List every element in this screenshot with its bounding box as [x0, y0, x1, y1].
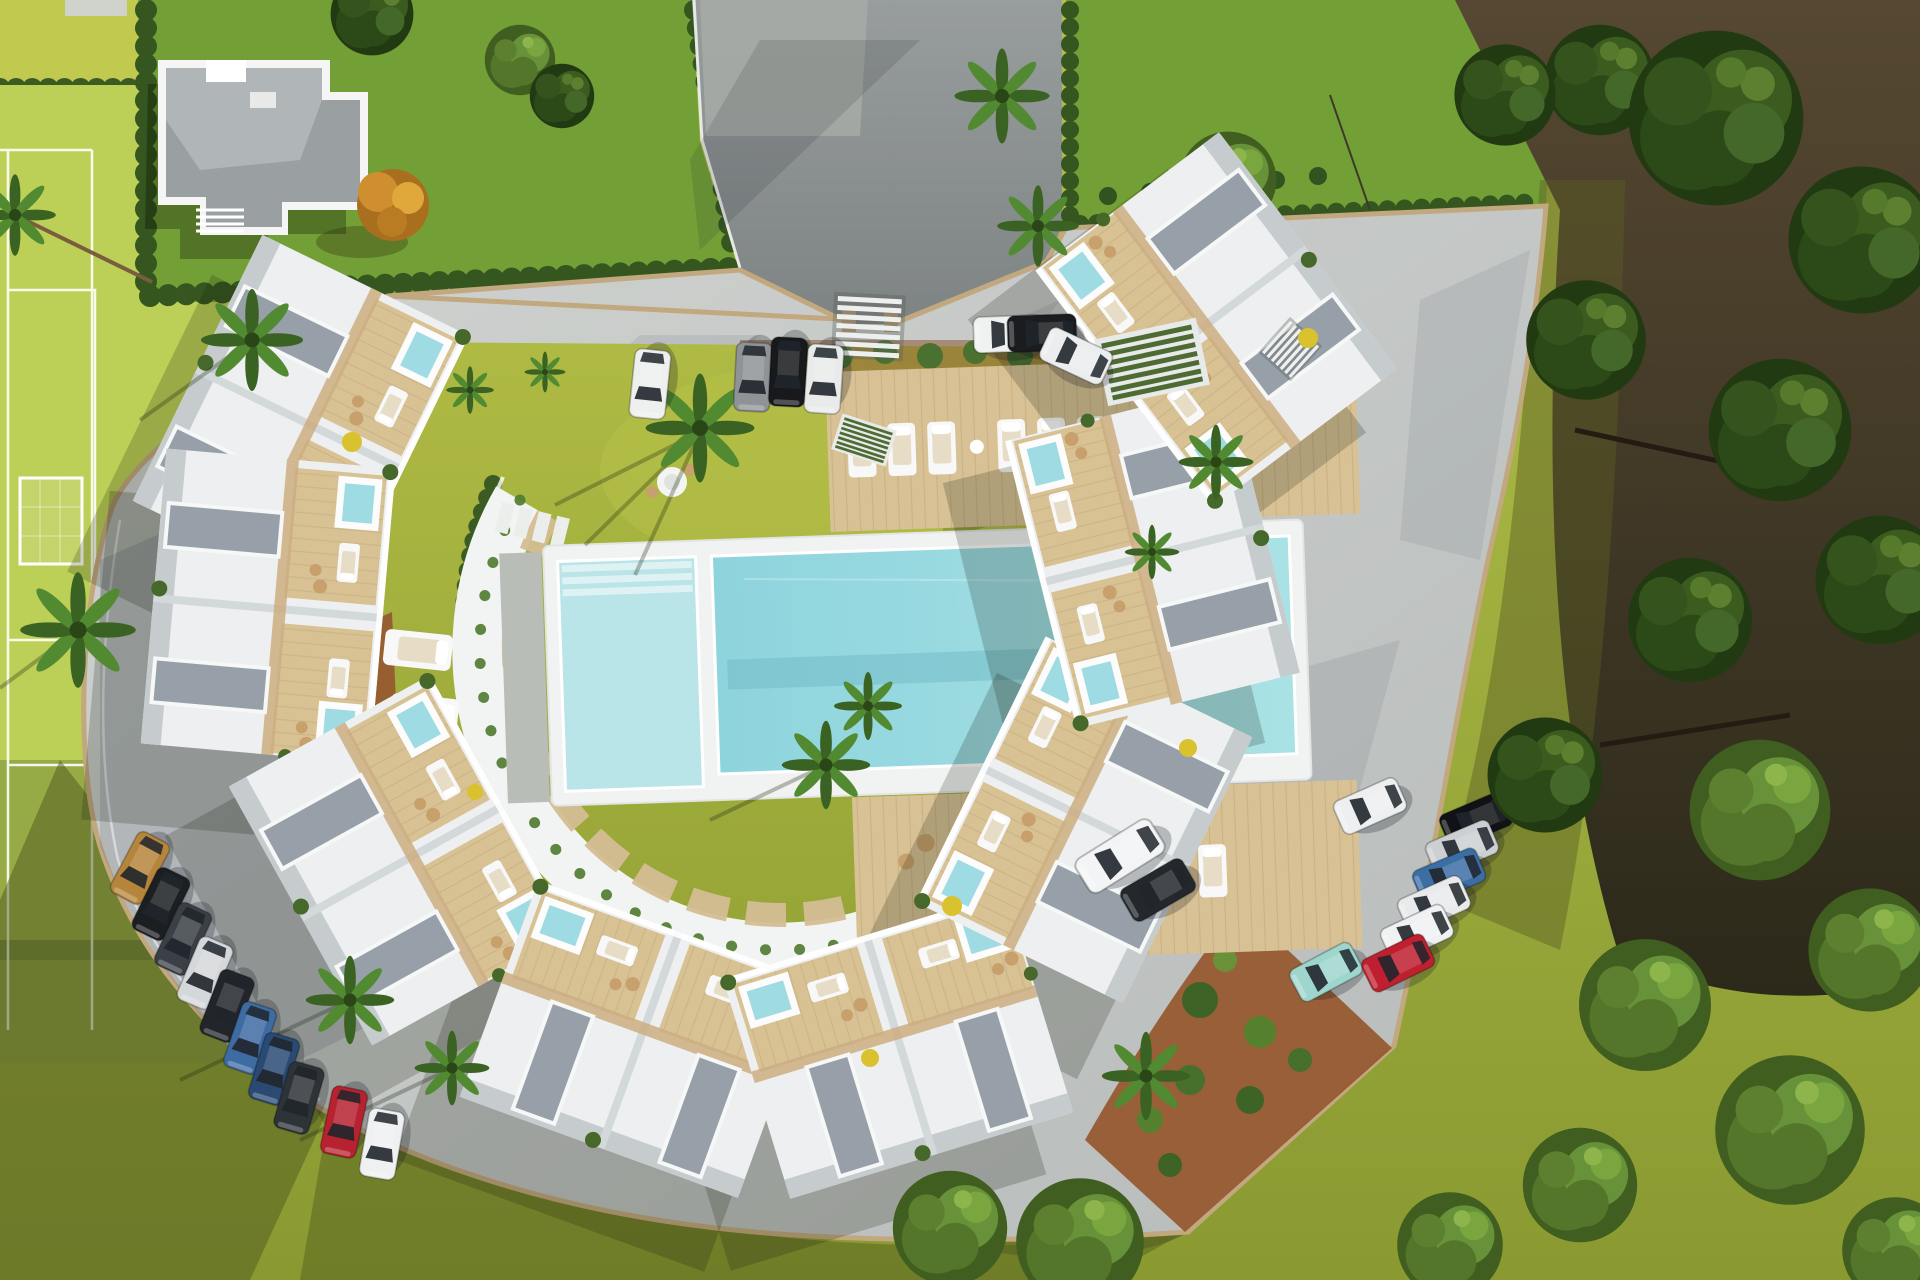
roof-box: [206, 60, 246, 82]
palm: [446, 366, 494, 414]
goal-frame: [20, 478, 82, 564]
roof-box-2: [250, 92, 276, 108]
palm: [954, 48, 1049, 143]
palm: [201, 289, 303, 391]
palm: [525, 352, 566, 393]
neighbor-parcel: [138, 0, 738, 302]
aerial-render: [0, 0, 1920, 1280]
palm: [415, 1031, 490, 1106]
pool-steps: [562, 561, 693, 597]
palm: [1125, 525, 1179, 579]
palm: [306, 956, 394, 1044]
palm: [782, 721, 870, 809]
stone-path: [499, 552, 550, 803]
tree: [530, 64, 594, 128]
palm: [1102, 1032, 1190, 1120]
palm: [834, 672, 902, 740]
aerial-render-stage: [0, 0, 1920, 1280]
palm: [1179, 425, 1254, 500]
palm: [997, 185, 1079, 267]
palm: [20, 572, 136, 688]
distant-roof: [65, 0, 127, 16]
